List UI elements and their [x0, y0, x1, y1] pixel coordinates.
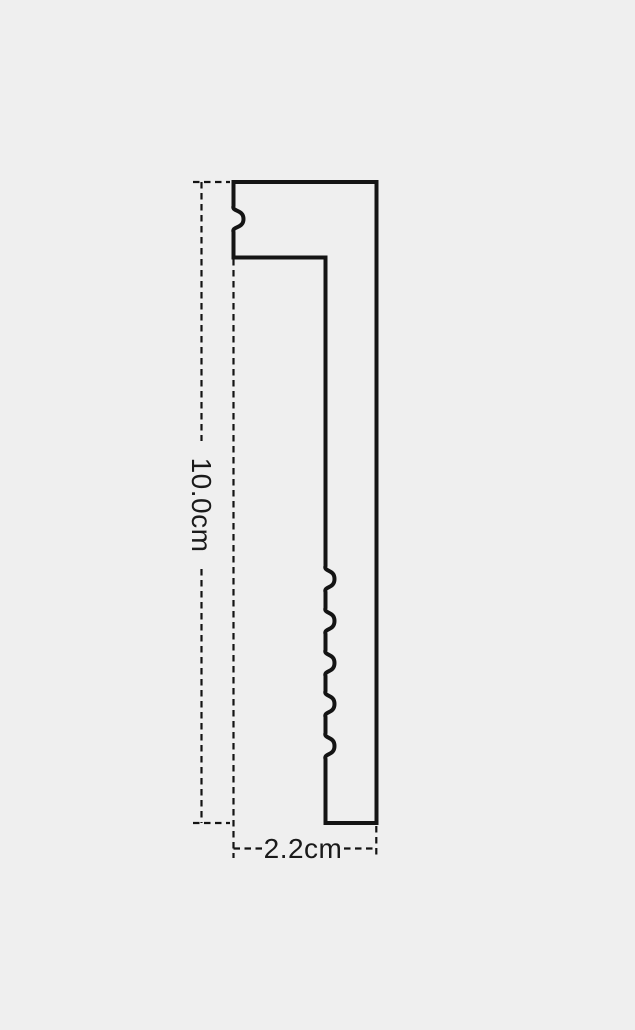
height-dimension: 10.0cm — [186, 182, 230, 823]
diagram-canvas: 10.0cm 2.2cm — [0, 0, 635, 1030]
height-dimension-label: 10.0cm — [186, 458, 217, 553]
profile-dimension-drawing: 10.0cm 2.2cm — [0, 0, 635, 1030]
width-dimension: 2.2cm — [234, 259, 377, 864]
width-dimension-label: 2.2cm — [264, 833, 343, 864]
profile-outline — [233, 182, 376, 823]
